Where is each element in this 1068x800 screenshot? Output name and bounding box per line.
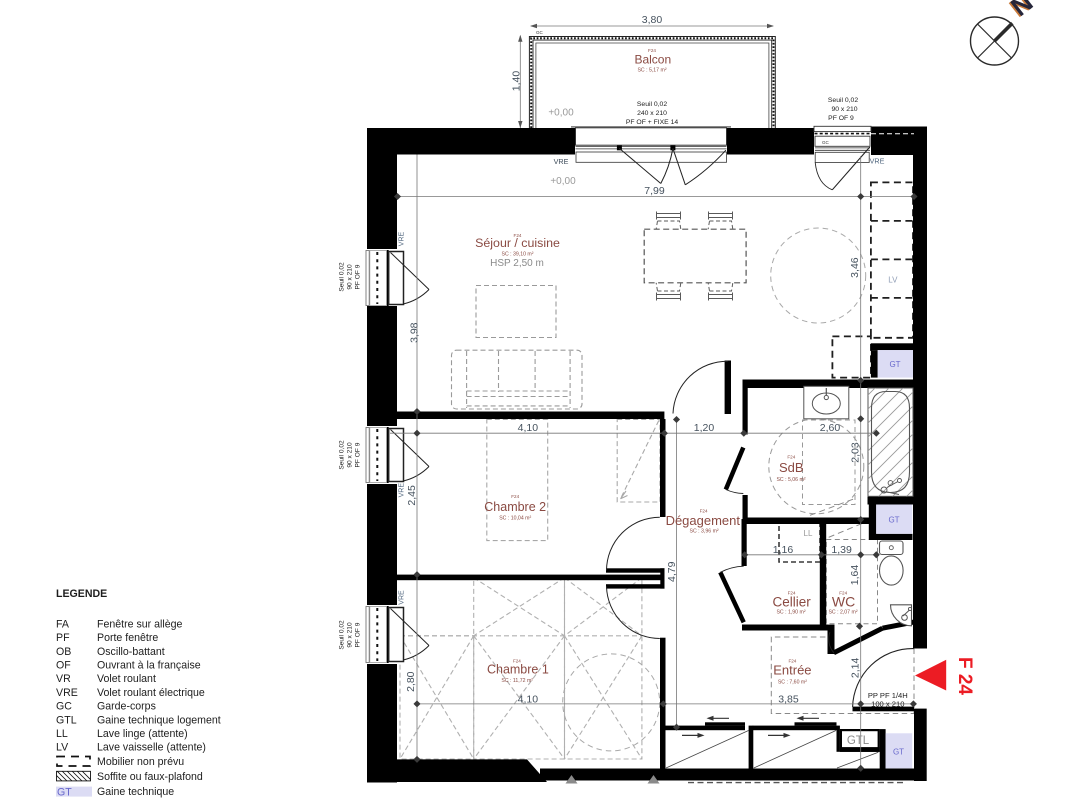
svg-text:Garde-corps: Garde-corps xyxy=(97,701,156,713)
svg-text:F 24: F 24 xyxy=(954,657,975,695)
svg-text:PF: PF xyxy=(56,632,70,644)
svg-text:SC : 3,96 m²: SC : 3,96 m² xyxy=(690,529,719,535)
svg-text:LL: LL xyxy=(804,529,813,538)
svg-text:4,79: 4,79 xyxy=(666,561,678,582)
svg-text:Chambre 2: Chambre 2 xyxy=(484,500,546,514)
svg-text:2,14: 2,14 xyxy=(850,658,862,679)
svg-text:LEGENDE: LEGENDE xyxy=(56,588,107,600)
svg-text:SC : 5,17 m²: SC : 5,17 m² xyxy=(637,68,666,74)
svg-text:Seuil 0,02: Seuil 0,02 xyxy=(338,440,345,470)
svg-text:Balcon: Balcon xyxy=(634,53,671,67)
svg-text:Lave linge (attente): Lave linge (attente) xyxy=(97,728,188,740)
svg-text:Lave vaisselle (attente): Lave vaisselle (attente) xyxy=(97,742,206,754)
svg-text:VRE: VRE xyxy=(398,590,405,605)
svg-text:90 x 210: 90 x 210 xyxy=(831,106,857,113)
svg-text:SC : 39,10 m²: SC : 39,10 m² xyxy=(501,252,533,258)
svg-text:3,98: 3,98 xyxy=(408,322,420,343)
svg-text:OB: OB xyxy=(56,646,71,658)
svg-text:Mobilier non prévu: Mobilier non prévu xyxy=(97,756,184,768)
svg-text:4,10: 4,10 xyxy=(518,693,539,705)
svg-text:Cellier: Cellier xyxy=(772,595,811,610)
svg-text:GT: GT xyxy=(893,748,904,757)
svg-text:VR: VR xyxy=(56,673,71,685)
svg-text:VRE: VRE xyxy=(399,231,406,246)
svg-text:Gaine technique: Gaine technique xyxy=(97,786,174,798)
svg-text:PF OF 9: PF OF 9 xyxy=(354,622,361,647)
svg-text:2,45: 2,45 xyxy=(406,485,418,506)
svg-text:1,40: 1,40 xyxy=(510,71,522,92)
svg-text:WC: WC xyxy=(832,594,855,610)
svg-text:OF: OF xyxy=(56,660,71,672)
svg-text:PF OF 9: PF OF 9 xyxy=(828,115,854,122)
svg-text:Seuil 0,02: Seuil 0,02 xyxy=(338,620,345,650)
svg-text:SC : 2,07 m²: SC : 2,07 m² xyxy=(828,610,857,616)
svg-text:Dégagement: Dégagement xyxy=(666,513,741,528)
svg-text:Ouvrant à la française: Ouvrant à la française xyxy=(97,660,201,672)
svg-text:LL: LL xyxy=(56,728,68,740)
svg-text:GT: GT xyxy=(57,786,72,798)
svg-text:2,80: 2,80 xyxy=(405,671,417,692)
svg-text:Oscillo-battant: Oscillo-battant xyxy=(97,646,165,658)
svg-text:1,20: 1,20 xyxy=(694,422,715,434)
svg-text:Porte fenêtre: Porte fenêtre xyxy=(97,632,158,644)
svg-text:VRE: VRE xyxy=(56,687,78,699)
svg-text:VRE: VRE xyxy=(399,483,406,498)
svg-text:PF OF + FIXE 14: PF OF + FIXE 14 xyxy=(626,119,679,126)
svg-text:1,16: 1,16 xyxy=(773,544,794,556)
svg-text:F24: F24 xyxy=(787,455,795,460)
svg-text:GC: GC xyxy=(536,30,544,35)
svg-text:GT: GT xyxy=(889,360,900,369)
svg-text:SC : 10,04 m²: SC : 10,04 m² xyxy=(499,516,531,522)
svg-text:Volet roulant électrique: Volet roulant électrique xyxy=(97,687,205,699)
svg-text:HSP 2,50 m: HSP 2,50 m xyxy=(490,258,544,269)
svg-text:SC : 1,90 m²: SC : 1,90 m² xyxy=(776,610,805,616)
svg-text:3,80: 3,80 xyxy=(642,14,663,26)
svg-text:LV: LV xyxy=(56,742,69,754)
svg-text:3,46: 3,46 xyxy=(849,257,861,278)
svg-text:240 x 210: 240 x 210 xyxy=(637,110,667,117)
svg-text:Seuil 0,02: Seuil 0,02 xyxy=(828,97,858,104)
svg-text:Fenêtre sur allège: Fenêtre sur allège xyxy=(97,618,182,630)
svg-text:SdB: SdB xyxy=(779,460,804,475)
svg-text:Soffite ou faux-plafond: Soffite ou faux-plafond xyxy=(97,771,203,783)
svg-text:90 x 210: 90 x 210 xyxy=(346,264,353,290)
svg-text:SC : 11,72 m²: SC : 11,72 m² xyxy=(501,678,533,684)
svg-text:+0,00: +0,00 xyxy=(548,108,574,119)
svg-text:VRE: VRE xyxy=(554,157,569,166)
svg-text:Chambre 1: Chambre 1 xyxy=(487,663,549,677)
svg-text:GTL: GTL xyxy=(56,714,77,726)
svg-text:Séjour / cuisine: Séjour / cuisine xyxy=(475,236,560,250)
svg-text:GTL: GTL xyxy=(847,735,870,747)
svg-text:GT: GT xyxy=(888,516,899,525)
svg-text:GC: GC xyxy=(822,140,830,145)
svg-text:GC: GC xyxy=(56,701,72,713)
svg-text:SC : 7,60 m²: SC : 7,60 m² xyxy=(778,680,807,686)
svg-text:F24: F24 xyxy=(511,494,519,499)
svg-text:Gaine technique logement: Gaine technique logement xyxy=(97,714,221,726)
svg-text:PF OF 9: PF OF 9 xyxy=(354,442,361,467)
svg-text:SC : 5,06 m²: SC : 5,06 m² xyxy=(776,477,805,483)
svg-text:+0,00: +0,00 xyxy=(550,176,576,187)
svg-text:3,85: 3,85 xyxy=(778,693,799,705)
svg-text:Seuil 0,02: Seuil 0,02 xyxy=(338,262,345,292)
svg-text:2,03: 2,03 xyxy=(849,442,861,463)
svg-text:Volet roulant: Volet roulant xyxy=(97,673,156,685)
svg-text:100 x 210: 100 x 210 xyxy=(871,700,904,709)
svg-text:7,99: 7,99 xyxy=(644,185,665,197)
svg-text:90 x 210: 90 x 210 xyxy=(346,442,353,468)
svg-text:Seuil 0,02: Seuil 0,02 xyxy=(637,101,667,108)
svg-text:1,64: 1,64 xyxy=(849,565,861,586)
svg-text:4,10: 4,10 xyxy=(518,422,539,434)
svg-text:Entrée: Entrée xyxy=(773,663,811,678)
svg-text:PF OF 9: PF OF 9 xyxy=(354,264,361,289)
svg-text:FA: FA xyxy=(56,618,70,630)
svg-text:90 x 210: 90 x 210 xyxy=(346,622,353,648)
svg-text:VRE: VRE xyxy=(870,157,885,166)
svg-text:2,60: 2,60 xyxy=(820,422,841,434)
svg-text:1,39: 1,39 xyxy=(831,544,852,556)
svg-text:LV: LV xyxy=(888,276,898,285)
